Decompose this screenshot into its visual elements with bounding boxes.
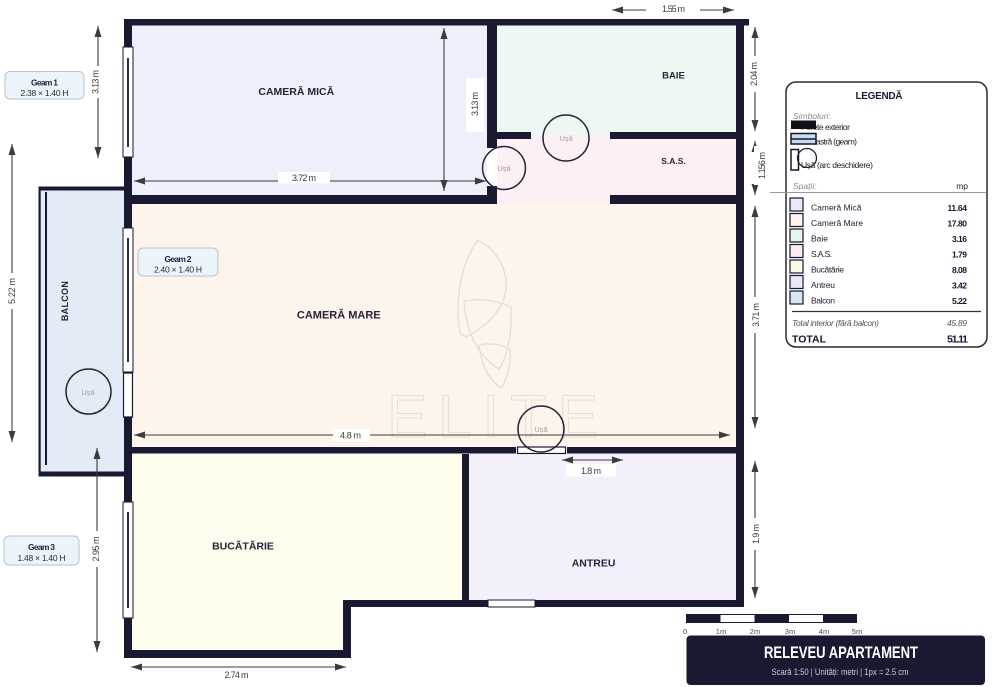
svg-text:2.74 m: 2.74 m xyxy=(225,670,249,680)
svg-text:Cameră Mică: Cameră Mică xyxy=(811,203,862,213)
svg-text:BAIE: BAIE xyxy=(662,71,685,82)
svg-text:Spații:: Spații: xyxy=(793,181,817,191)
svg-text:1.55 m: 1.55 m xyxy=(662,4,685,14)
svg-text:1.79: 1.79 xyxy=(952,250,967,260)
svg-text:1.9 m: 1.9 m xyxy=(751,524,761,544)
svg-text:Scară 1:50 | Unități: metri |: Scară 1:50 | Unități: metri | 1px = 2.5 … xyxy=(772,667,909,678)
svg-text:2.04 m: 2.04 m xyxy=(749,62,759,86)
svg-text:Antreu: Antreu xyxy=(811,280,835,290)
svg-text:RELEVEU APARTAMENT: RELEVEU APARTAMENT xyxy=(764,643,918,662)
svg-text:2.38 × 1.40 H: 2.38 × 1.40 H xyxy=(21,88,69,98)
svg-text:TOTAL: TOTAL xyxy=(792,334,827,346)
svg-text:1m: 1m xyxy=(716,627,726,636)
svg-text:S.A.S.: S.A.S. xyxy=(661,156,686,166)
svg-text:1.156 m: 1.156 m xyxy=(757,152,767,179)
svg-text:ANTREU: ANTREU xyxy=(572,558,616,570)
svg-text:3.71 m: 3.71 m xyxy=(751,303,761,327)
svg-text:2.95 m: 2.95 m xyxy=(91,537,101,562)
svg-text:Ușă: Ușă xyxy=(559,134,573,143)
svg-text:Ușă (arc deschidere): Ușă (arc deschidere) xyxy=(801,160,873,170)
svg-text:45.89: 45.89 xyxy=(947,318,967,328)
svg-text:Ușă: Ușă xyxy=(81,388,95,397)
svg-text:Cameră Mare: Cameră Mare xyxy=(811,218,863,228)
svg-text:3.13 m: 3.13 m xyxy=(470,92,480,116)
svg-text:5m: 5m xyxy=(852,627,862,636)
svg-text:BALCON: BALCON xyxy=(60,281,70,321)
svg-text:mp: mp xyxy=(956,181,968,191)
svg-text:17.80: 17.80 xyxy=(948,219,968,229)
svg-text:1.48 × 1.40 H: 1.48 × 1.40 H xyxy=(18,553,66,563)
svg-text:2.40 × 1.40 H: 2.40 × 1.40 H xyxy=(154,265,202,275)
svg-text:Bucătărie: Bucătărie xyxy=(811,265,844,275)
svg-text:Simboluri:: Simboluri: xyxy=(793,111,831,121)
svg-text:CAMERĂ MARE: CAMERĂ MARE xyxy=(297,309,381,322)
svg-text:Geam 1: Geam 1 xyxy=(31,78,58,88)
svg-text:3.13 m: 3.13 m xyxy=(91,70,101,94)
svg-text:CAMERĂ MICĂ: CAMERĂ MICĂ xyxy=(258,85,334,98)
svg-text:5.22: 5.22 xyxy=(952,296,967,306)
svg-text:3.72 m: 3.72 m xyxy=(292,173,316,183)
svg-text:Balcon: Balcon xyxy=(811,296,835,306)
svg-text:2m: 2m xyxy=(750,627,760,636)
svg-text:Geam 2: Geam 2 xyxy=(165,254,192,264)
svg-text:3m: 3m xyxy=(785,627,795,636)
svg-text:Ușă: Ușă xyxy=(497,164,511,173)
svg-text:1.8 m: 1.8 m xyxy=(581,466,601,476)
svg-text:Total interior (fără balcon): Total interior (fără balcon) xyxy=(792,318,879,328)
svg-text:5.22 m: 5.22 m xyxy=(7,278,17,304)
svg-text:3.16: 3.16 xyxy=(952,234,967,244)
svg-text:Baie: Baie xyxy=(811,234,828,244)
svg-text:4m: 4m xyxy=(819,627,829,636)
svg-text:8.08: 8.08 xyxy=(952,265,967,275)
svg-text:Ușă: Ușă xyxy=(534,425,548,434)
svg-text:ELITE: ELITE xyxy=(387,383,609,450)
svg-text:Geam 3: Geam 3 xyxy=(28,542,55,552)
svg-text:11.64: 11.64 xyxy=(948,203,968,213)
svg-text:S.A.S.: S.A.S. xyxy=(811,249,832,259)
svg-text:3.42: 3.42 xyxy=(952,281,967,291)
svg-text:BUCĂTĂRIE: BUCĂTĂRIE xyxy=(212,540,274,553)
svg-text:4.8 m: 4.8 m xyxy=(340,431,361,441)
svg-text:0: 0 xyxy=(683,627,687,636)
svg-text:51.11: 51.11 xyxy=(947,334,968,346)
svg-text:LEGENDĂ: LEGENDĂ xyxy=(856,89,903,102)
